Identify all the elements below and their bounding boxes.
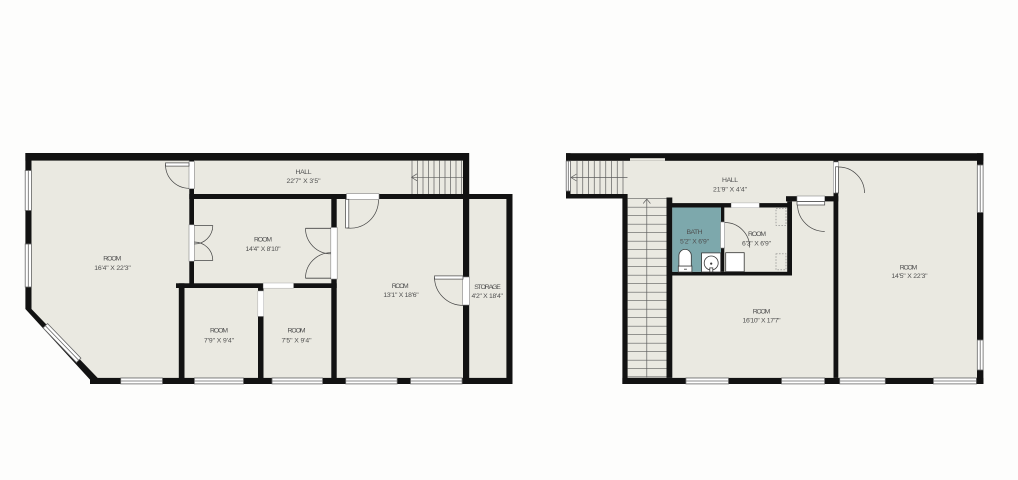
svg-text:HALL: HALL (296, 169, 312, 176)
svg-text:STORAGE: STORAGE (474, 284, 501, 291)
svg-text:ROOM: ROOM (753, 309, 771, 316)
svg-text:7'9" X 9'4": 7'9" X 9'4" (204, 337, 235, 344)
svg-text:ROOM: ROOM (288, 327, 306, 334)
svg-text:4'2" X 18'4": 4'2" X 18'4" (471, 293, 503, 300)
svg-text:7'5" X 9'4": 7'5" X 9'4" (282, 337, 313, 344)
svg-text:ROOM: ROOM (392, 283, 409, 290)
svg-text:ROOM: ROOM (900, 264, 918, 271)
svg-text:ROOM: ROOM (748, 231, 766, 238)
svg-text:BATH: BATH (687, 229, 703, 236)
svg-text:14'4" X 8'10": 14'4" X 8'10" (246, 246, 282, 253)
svg-text:21'9" X 4'4": 21'9" X 4'4" (713, 187, 748, 194)
svg-text:14'5" X 22'3": 14'5" X 22'3" (891, 273, 928, 280)
svg-text:6'3" X 6'9": 6'3" X 6'9" (742, 241, 772, 248)
svg-text:HALL: HALL (722, 177, 738, 184)
svg-text:13'1" X 18'6": 13'1" X 18'6" (383, 292, 419, 299)
svg-text:5'2" X 6'9": 5'2" X 6'9" (680, 239, 710, 246)
svg-text:ROOM: ROOM (210, 327, 228, 334)
svg-text:22'7" X 3'5": 22'7" X 3'5" (287, 178, 322, 185)
svg-text:16'10" X 17'7": 16'10" X 17'7" (743, 318, 782, 325)
svg-text:16'4" X 22'3": 16'4" X 22'3" (94, 265, 131, 272)
svg-text:ROOM: ROOM (103, 256, 121, 263)
svg-text:ROOM: ROOM (254, 236, 272, 243)
